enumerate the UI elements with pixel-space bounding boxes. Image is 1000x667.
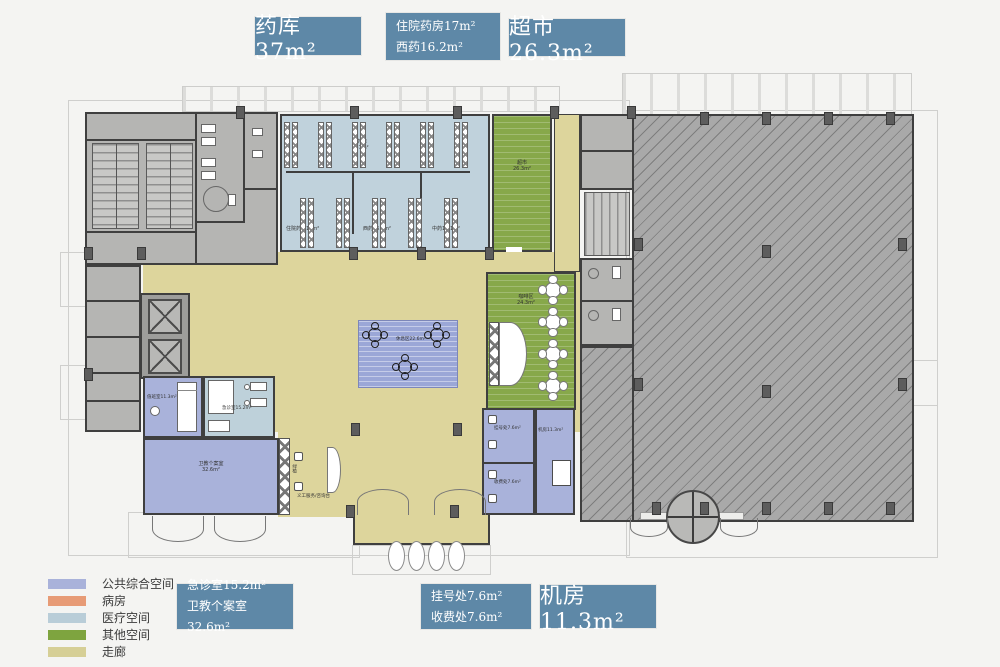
- callout-text: 收费处7.6m²: [431, 607, 521, 628]
- table-part: [548, 360, 558, 370]
- health-education-room: [143, 438, 279, 515]
- column: [762, 385, 771, 398]
- room-label-cashier: 收费处7.6m²: [494, 480, 521, 486]
- entrance-door-leaf: [428, 541, 445, 571]
- room-label-line: 24.3m²: [517, 300, 535, 306]
- room-label-plants: 绿植: [291, 464, 297, 473]
- door-swing: [152, 516, 204, 542]
- toilet-fixture: [612, 308, 621, 321]
- wall: [352, 172, 354, 234]
- hall-notch: [580, 346, 634, 522]
- table-part: [538, 381, 548, 391]
- room-label-supermarket: 超市26.3m²: [502, 160, 542, 173]
- table-part: [548, 339, 558, 349]
- shelf-rack: [380, 198, 386, 248]
- toilet-fixture: [588, 268, 599, 279]
- column: [236, 106, 245, 119]
- wall: [580, 150, 634, 152]
- room-label-line: 32.6m²: [202, 467, 220, 473]
- room-label-emergency: 急诊室15.2m²: [222, 406, 252, 412]
- corridor-north: [554, 114, 580, 272]
- toilet-stall: [201, 171, 216, 180]
- outline-bay-right: [912, 360, 938, 406]
- column: [762, 245, 771, 258]
- callout-text: 机房11.3m²: [540, 578, 656, 635]
- entrance-door-leaf: [448, 541, 465, 571]
- cafe-table: [539, 340, 567, 368]
- stage-back-screen: [489, 322, 499, 386]
- elevator-icon: [148, 299, 182, 334]
- table-part: [538, 285, 548, 295]
- table-part: [380, 331, 388, 339]
- column: [762, 112, 771, 125]
- room-label-line: 卫教个案室: [198, 461, 223, 467]
- table-part: [424, 331, 432, 339]
- floor-plan: 药库37m² 住院药房17m² 西药16.2m² 中药15.1m² 超市26.3…: [0, 0, 1000, 667]
- wall: [286, 171, 470, 173]
- shelf-rack: [336, 198, 342, 248]
- column: [886, 112, 895, 125]
- toilet-fixture: [612, 266, 621, 279]
- wall: [245, 188, 278, 190]
- table-part: [559, 381, 569, 391]
- table-part: [559, 285, 569, 295]
- cafe-table: [539, 372, 567, 400]
- room-label-lounge: 休息区22.6m²: [396, 337, 426, 343]
- supermarket-room: [492, 114, 552, 252]
- table-part: [401, 372, 409, 380]
- table-part: [392, 363, 400, 371]
- door-swing: [720, 518, 758, 537]
- table-part: [371, 340, 379, 348]
- hall-unprogrammed: [632, 114, 914, 522]
- legend-label: 其他空间: [102, 626, 150, 643]
- shelf-rack: [386, 122, 392, 168]
- legend-item: 走廊: [48, 643, 174, 660]
- legend-label: 公共综合空间: [102, 575, 174, 592]
- legend-swatch-corridor: [48, 647, 86, 657]
- chair: [244, 384, 250, 390]
- shelf-rack: [300, 198, 306, 248]
- elevator-icon: [148, 339, 182, 374]
- lounge-table: [425, 323, 449, 347]
- table-part: [548, 371, 558, 381]
- column: [453, 106, 462, 119]
- legend-swatch-medical: [48, 613, 86, 623]
- legend-label: 医疗空间: [102, 609, 150, 626]
- door-swing: [357, 489, 409, 515]
- shelf-rack: [344, 198, 350, 248]
- legend: 公共综合空间 病房 医疗空间 其他空间 走廊: [48, 575, 174, 660]
- entrance-door-leaf: [388, 541, 405, 571]
- room-label-machine-room: 机房11.3m²: [538, 428, 563, 434]
- service-east-top: [580, 114, 634, 190]
- wall: [85, 400, 141, 402]
- column: [351, 423, 360, 436]
- shelf-rack: [452, 198, 458, 248]
- column: [417, 247, 426, 260]
- table-part: [559, 317, 569, 327]
- callout-text: 药库37m²: [255, 8, 361, 65]
- shelf-rack: [420, 122, 426, 168]
- shelf-rack: [408, 198, 414, 248]
- callout-emergency: 急诊室15.2m²卫教个案室32.6m²: [177, 584, 293, 629]
- legend-swatch-other: [48, 630, 86, 640]
- canopy-top-right: [622, 73, 912, 115]
- door-swing: [214, 516, 266, 542]
- wall: [243, 112, 245, 222]
- desk-small: [250, 382, 267, 391]
- legend-swatch-ward: [48, 596, 86, 606]
- table-part: [362, 331, 370, 339]
- callout-text: 急诊室15.2m²: [187, 575, 283, 596]
- column: [700, 112, 709, 125]
- door-opening: [506, 247, 522, 252]
- desk-small: [250, 398, 267, 407]
- room-label-registration: 挂号处7.6m²: [494, 426, 521, 432]
- cafe-table: [539, 308, 567, 336]
- rooms-west-strip: [85, 265, 141, 432]
- legend-item: 其他空间: [48, 626, 174, 643]
- table-part: [548, 328, 558, 338]
- column: [886, 502, 895, 515]
- wall: [85, 372, 141, 374]
- table-part: [442, 331, 450, 339]
- stool: [488, 415, 497, 424]
- legend-item: 医疗空间: [48, 609, 174, 626]
- table-part: [548, 275, 558, 285]
- entrance-door-leaf: [408, 541, 425, 571]
- table-part: [538, 349, 548, 359]
- table-part: [559, 349, 569, 359]
- shelf-rack: [308, 198, 314, 248]
- legend-label: 走廊: [102, 643, 126, 660]
- room-label-duty-room: 值班室11.3m²: [147, 395, 177, 401]
- column: [824, 502, 833, 515]
- shelf-rack: [318, 122, 324, 168]
- toilet-fixture: [228, 194, 236, 206]
- legend-item: 公共综合空间: [48, 575, 174, 592]
- sink: [252, 128, 263, 136]
- lounge-table: [363, 323, 387, 347]
- column: [450, 505, 459, 518]
- column: [652, 502, 661, 515]
- callout-text: 卫教个案室32.6m²: [187, 596, 283, 638]
- shelf-rack: [292, 122, 298, 168]
- stool: [488, 470, 497, 479]
- shelf-rack: [394, 122, 400, 168]
- table-part: [548, 296, 558, 306]
- stool: [294, 452, 303, 461]
- column: [627, 106, 636, 119]
- toilet-stall: [201, 158, 216, 167]
- column: [137, 247, 146, 260]
- cabinet: [208, 420, 230, 432]
- shelf-rack: [462, 122, 468, 168]
- room-label-line: 26.3m²: [513, 166, 531, 172]
- shelf-rack: [352, 122, 358, 168]
- column: [349, 247, 358, 260]
- legend-label: 病房: [102, 592, 126, 609]
- table-part: [371, 322, 379, 330]
- wall: [196, 221, 245, 223]
- door-swing: [434, 489, 486, 515]
- column: [898, 378, 907, 391]
- wall: [85, 300, 141, 302]
- toilet-fixture: [588, 310, 599, 321]
- column: [634, 238, 643, 251]
- stool: [150, 406, 160, 416]
- column: [634, 378, 643, 391]
- plant-screen: [279, 438, 290, 515]
- column: [550, 106, 559, 119]
- shelf-rack: [416, 198, 422, 248]
- shelf-rack: [444, 198, 450, 248]
- shelf-rack: [428, 122, 434, 168]
- callout-drug-store: 药库37m²: [255, 17, 361, 55]
- callout-registration: 挂号处7.6m²收费处7.6m²: [421, 584, 531, 629]
- callout-text: 挂号处7.6m²: [431, 586, 521, 607]
- callout-text: 超市26.3m²: [509, 9, 625, 66]
- shelf-rack: [454, 122, 460, 168]
- staircase-west-1: [92, 143, 139, 229]
- table-part: [410, 363, 418, 371]
- room-label-line: 超市: [517, 160, 527, 166]
- door-swing: [630, 518, 668, 537]
- cafe-table: [539, 276, 567, 304]
- table-part: [548, 307, 558, 317]
- lounge-table: [393, 355, 417, 379]
- stool: [488, 440, 497, 449]
- revolving-door-icon: [666, 490, 720, 544]
- wall: [85, 336, 141, 338]
- table-part: [433, 322, 441, 330]
- table-part: [548, 392, 558, 402]
- table-part: [401, 354, 409, 362]
- table-part: [433, 340, 441, 348]
- stool: [488, 494, 497, 503]
- staircase-east: [584, 192, 630, 256]
- room-label-health-edu: 卫教个案室32.6m²: [178, 461, 244, 474]
- column: [485, 247, 494, 260]
- wall: [195, 112, 197, 265]
- wall: [85, 139, 196, 141]
- legend-swatch-public: [48, 579, 86, 589]
- room-label-line: 咖啡区: [518, 294, 533, 300]
- column: [346, 505, 355, 518]
- column: [84, 247, 93, 260]
- callout-inpatient-pharmacy: 住院药房17m²西药16.2m²: [386, 13, 500, 60]
- entrance-vestibule: [353, 515, 490, 545]
- stool: [294, 482, 303, 491]
- equipment-icon: [552, 460, 571, 486]
- toilet-stall: [201, 124, 216, 133]
- table-part: [538, 317, 548, 327]
- sink: [252, 150, 263, 158]
- column: [84, 368, 93, 381]
- shelf-rack: [372, 198, 378, 248]
- bed-pillow-line: [177, 390, 197, 391]
- shelf-rack: [326, 122, 332, 168]
- room-label-volunteer-desk: 义工服务/咨询台: [297, 494, 330, 500]
- accessible-toilet: [203, 186, 229, 212]
- shelf-rack: [360, 122, 366, 168]
- column: [453, 423, 462, 436]
- toilet-stall: [201, 137, 216, 146]
- callout-machine-room: 机房11.3m²: [540, 585, 656, 628]
- callout-text: 住院药房17m²: [396, 16, 490, 37]
- column: [762, 502, 771, 515]
- staircase-west-2: [146, 143, 193, 229]
- shelf-rack: [284, 122, 290, 168]
- legend-item: 病房: [48, 592, 174, 609]
- column: [700, 502, 709, 515]
- wall: [580, 300, 634, 302]
- column: [350, 106, 359, 119]
- column: [824, 112, 833, 125]
- callout-text: 西药16.2m²: [396, 37, 490, 58]
- callout-supermarket: 超市26.3m²: [509, 19, 625, 56]
- wall: [85, 231, 196, 233]
- column: [898, 238, 907, 251]
